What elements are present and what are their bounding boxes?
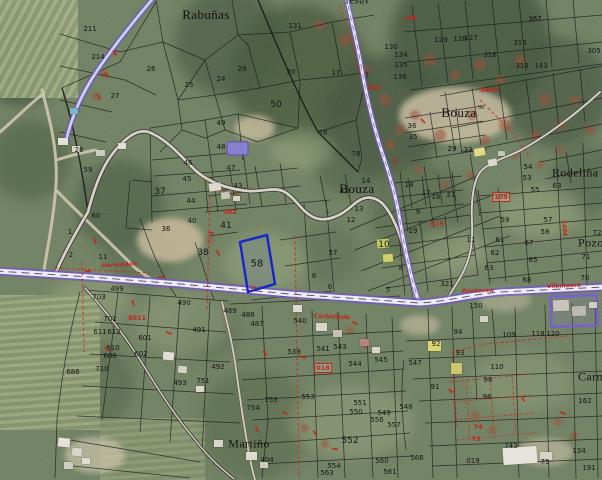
cadastral-map[interactable]: 2112142627285960121125242920171315049487… bbox=[0, 0, 602, 480]
selection-rectangle bbox=[550, 295, 597, 327]
photo-grain bbox=[0, 0, 602, 480]
map-graphics bbox=[0, 0, 602, 480]
highlighted-parcel-fill bbox=[227, 142, 248, 155]
